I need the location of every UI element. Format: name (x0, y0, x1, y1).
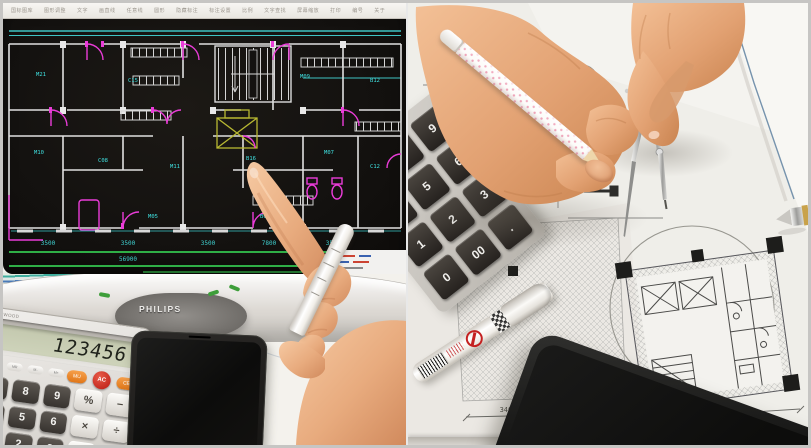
room-labels: M21 C15 M09 B12 M10 C08 M11 B16 M07 C12 … (34, 72, 380, 220)
svg-text:3500: 3500 (201, 240, 216, 247)
photo-composite: 国标图库 图形调整 文字 画直线 任意线 圆形 隐藏标注 标注设置 比例 文字查… (0, 0, 811, 448)
marker-label-text (446, 341, 466, 358)
key-plus: + (66, 440, 96, 445)
key-7: 7 (3, 375, 9, 400)
left-photo-cad-monitor: 国标图库 图形调整 文字 画直线 任意线 圆形 隐藏标注 标注设置 比例 文字查… (3, 3, 406, 445)
svg-text:B12: B12 (370, 78, 380, 84)
menu-item: 圆形 (154, 7, 165, 14)
menu-item: 屏幕缩放 (297, 7, 319, 14)
menu-item: 关于 (374, 7, 385, 14)
photo-pair: 国标图库 图形调整 文字 画直线 任意线 圆形 隐藏标注 标注设置 比例 文字查… (3, 3, 808, 445)
ac-key: AC (92, 370, 112, 390)
svg-text:3500: 3500 (121, 240, 136, 247)
svg-text:M10: M10 (34, 150, 44, 156)
key-percent: % (74, 388, 104, 413)
menu-item: 任意线 (127, 7, 144, 14)
svg-text:M07: M07 (324, 150, 334, 156)
phone-screen (132, 337, 261, 445)
menu-item: 国标图库 (11, 7, 33, 14)
key-3: 3 (35, 436, 65, 445)
elevator-shaft (217, 110, 257, 148)
key-4: 4 (3, 401, 5, 426)
menu-item: 标注设置 (209, 7, 231, 14)
svg-text:C12: C12 (370, 164, 380, 170)
menu-item: 画直线 (99, 7, 116, 14)
menu-item: 文字 (77, 7, 88, 14)
menu-item: 比例 (242, 7, 253, 14)
svg-text:C08: C08 (98, 158, 108, 164)
philips-logo: PHILIPS (139, 304, 182, 314)
svg-text:C15: C15 (128, 78, 138, 84)
svg-text:M09: M09 (300, 74, 310, 80)
key-9: 9 (42, 383, 72, 408)
walls (9, 44, 401, 228)
svg-text:56900: 56900 (119, 256, 137, 263)
smartphone (126, 330, 268, 445)
svg-text:M05: M05 (148, 214, 158, 220)
svg-text:M21: M21 (36, 72, 46, 78)
mu-key: MU (66, 369, 87, 384)
menu-item: 文字查找 (264, 7, 286, 14)
svg-text:M11: M11 (170, 164, 180, 170)
phone-speaker (189, 336, 211, 339)
key-6: 6 (39, 410, 69, 435)
svg-text:3500: 3500 (41, 240, 56, 247)
key-8: 8 (11, 379, 41, 404)
key-multiply: × (70, 414, 100, 439)
menu-item: 图形调整 (44, 7, 66, 14)
menu-item: 打印 (330, 7, 341, 14)
svg-text:B09: B09 (260, 214, 270, 220)
svg-text:7800: 7800 (262, 240, 277, 247)
right-photo-blueprints: 3400 9000 30700 789 456 123 000. (408, 3, 808, 445)
svg-text:B16: B16 (246, 156, 256, 162)
stairwell (215, 46, 291, 102)
cad-menubar: 国标图库 图形调整 文字 画直线 任意线 圆形 隐藏标注 标注设置 比例 文字查… (3, 3, 406, 19)
calculator-brand: SUNWOOD (3, 310, 20, 319)
key-5: 5 (7, 405, 37, 430)
menu-item: 编号 (352, 7, 363, 14)
key-2: 2 (3, 431, 33, 445)
menu-item: 隐藏标注 (176, 7, 198, 14)
calculator-display: 123456 (3, 323, 137, 369)
